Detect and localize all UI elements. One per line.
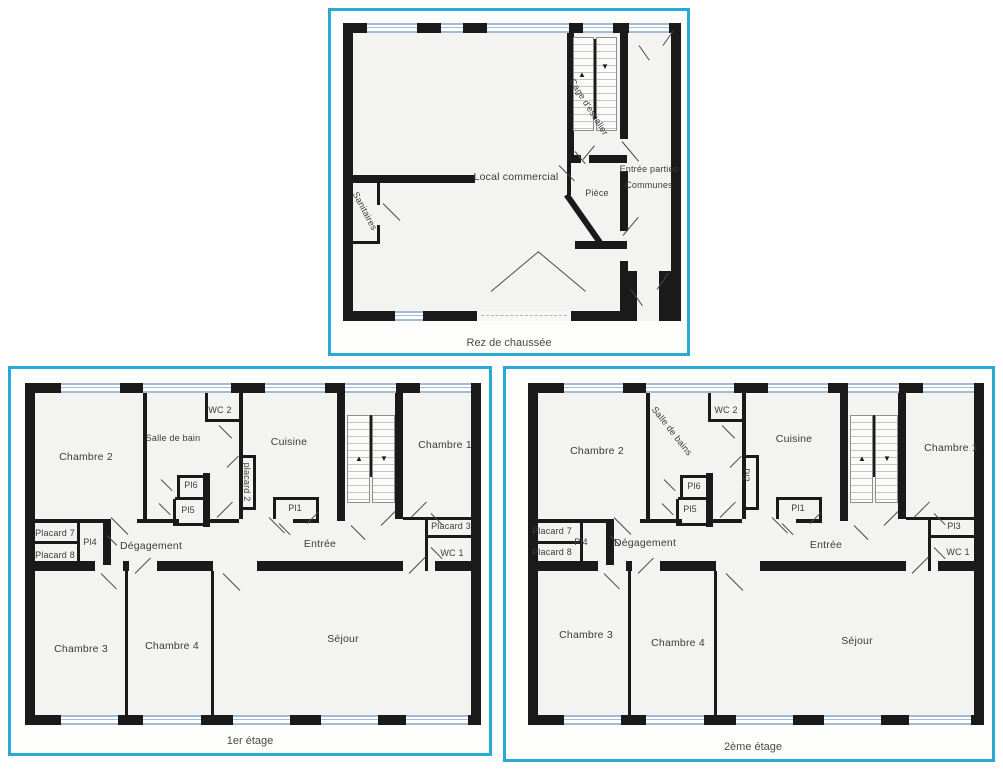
window-symbol	[143, 383, 231, 393]
wall	[714, 571, 717, 715]
wall	[974, 383, 984, 725]
window-symbol	[564, 715, 621, 725]
room-label-degagement: Dégagement	[614, 537, 676, 549]
room-label-chambre1: Chambre 1	[418, 439, 472, 451]
room-label-local-commercial: Local commercial	[474, 171, 559, 183]
wall	[589, 155, 627, 163]
plan-ground-inner: ▲▼Local commercialSanitairesPièceCage d'…	[331, 11, 687, 353]
room-label-wc1: WC 1	[440, 548, 463, 558]
plan-first-floor: ▲▼Chambre 2Salle de bainWC 2CuisineChamb…	[8, 366, 492, 756]
floor-area	[25, 383, 481, 725]
floor-area	[528, 383, 984, 725]
window-symbol	[923, 383, 974, 393]
room-label-pl5: Pl5	[181, 505, 195, 515]
room-label-cuisine: Cuisine	[271, 436, 307, 448]
plan-second-inner: ▲▼Chambre 2Salle de bainsWC 2CuisineCham…	[514, 369, 992, 759]
room-label-sejour: Séjour	[327, 633, 359, 645]
wall	[35, 541, 77, 544]
wall	[239, 507, 256, 510]
room-label-chambre1: Chambre 1	[924, 442, 978, 454]
wall	[938, 561, 974, 571]
wall	[253, 457, 256, 509]
room-label-pl6: Pl6	[184, 480, 198, 490]
wall	[710, 519, 742, 523]
window-symbol	[420, 383, 471, 393]
stair-direction-arrow-icon: ▲	[355, 455, 363, 463]
window-symbol	[768, 383, 828, 393]
floor-caption: 1er étage	[11, 735, 489, 747]
window-symbol	[583, 23, 613, 33]
room-label-entree: Entrée	[810, 539, 842, 551]
wall	[538, 561, 598, 571]
room-label-placard7: Placard 7	[35, 528, 75, 538]
wall	[143, 393, 147, 519]
wall	[25, 383, 35, 725]
wall	[640, 519, 682, 523]
window-symbol	[909, 715, 971, 725]
wall	[708, 419, 746, 422]
wall	[628, 571, 631, 715]
glazing-dashed-line	[481, 315, 567, 316]
wall	[575, 241, 627, 249]
wall	[928, 535, 974, 538]
window-symbol	[824, 715, 881, 725]
plan-second-floor: ▲▼Chambre 2Salle de bainsWC 2CuisineCham…	[503, 366, 995, 762]
window-symbol	[61, 383, 120, 393]
wall	[567, 163, 571, 195]
room-label-chambre4: Chambre 4	[651, 637, 705, 649]
wall	[205, 419, 243, 422]
window-symbol	[736, 715, 793, 725]
stair-direction-arrow-icon: ▼	[601, 63, 609, 71]
plan-first-inner: ▲▼Chambre 2Salle de bainWC 2CuisineChamb…	[11, 369, 489, 753]
wall	[435, 561, 471, 571]
wall	[620, 261, 628, 315]
stair-direction-arrow-icon: ▲	[858, 455, 866, 463]
room-label-placard2: placard 2	[242, 463, 252, 502]
stair-direction-arrow-icon: ▼	[380, 455, 388, 463]
wall	[620, 23, 628, 139]
room-label-placard3: Placard 3	[431, 521, 471, 531]
room-label-pl2: Pl2	[741, 468, 751, 482]
window-symbol	[629, 23, 669, 33]
wall	[756, 457, 759, 509]
room-label-pl1: Pl1	[288, 503, 302, 513]
room-label-entree: Entrée	[304, 538, 336, 550]
stair-direction-arrow-icon: ▲	[578, 71, 586, 79]
room-label-chambre2: Chambre 2	[570, 445, 624, 457]
wall	[273, 500, 276, 519]
window-symbol	[143, 715, 201, 725]
wall	[898, 393, 906, 519]
room-label-sejour: Séjour	[841, 635, 873, 647]
window-symbol	[441, 23, 463, 33]
wall	[742, 507, 759, 510]
window-symbol	[265, 383, 325, 393]
wall	[819, 500, 822, 519]
wall	[395, 393, 403, 519]
room-label-placard8: Placard 8	[532, 547, 572, 557]
wall	[538, 519, 610, 523]
window-symbol	[321, 715, 378, 725]
wall	[35, 519, 107, 523]
room-label-chambre4: Chambre 4	[145, 640, 199, 652]
wall	[103, 519, 111, 565]
wall	[273, 497, 319, 500]
wall	[316, 500, 319, 519]
wall	[157, 561, 213, 571]
plan-ground-floor: ▲▼Local commercialSanitairesPièceCage d'…	[328, 8, 690, 356]
stair-direction-arrow-icon: ▼	[883, 455, 891, 463]
room-label-wc2: WC 2	[208, 405, 231, 415]
room-label-pl1: Pl1	[791, 503, 805, 513]
room-label-pl4: Pl4	[83, 537, 97, 547]
room-label-chambre3: Chambre 3	[559, 629, 613, 641]
window-symbol	[646, 383, 734, 393]
room-label-communes: Communes	[625, 180, 673, 190]
window-symbol	[646, 715, 704, 725]
floor-caption: 2ème étage	[514, 741, 992, 753]
wall	[606, 519, 614, 565]
room-label-chambre3: Chambre 3	[54, 643, 108, 655]
room-label-pl6: Pl6	[687, 481, 701, 491]
wall	[343, 23, 353, 321]
window-symbol	[367, 23, 417, 33]
room-label-pl5: Pl5	[683, 504, 697, 514]
room-label-piece: Pièce	[585, 188, 609, 198]
wall	[211, 571, 214, 715]
window-symbol	[848, 383, 899, 393]
wall	[776, 497, 822, 500]
wall	[471, 383, 481, 725]
window-symbol	[345, 383, 396, 393]
wall	[646, 393, 650, 519]
window-symbol	[61, 715, 118, 725]
window-symbol	[487, 23, 569, 33]
room-label-wc2: WC 2	[714, 405, 737, 415]
window-symbol	[564, 383, 623, 393]
wall	[207, 519, 239, 523]
wall	[760, 561, 906, 571]
storefront-opening	[477, 311, 571, 321]
wall	[35, 561, 95, 571]
wall	[377, 183, 380, 205]
wall	[425, 535, 471, 538]
room-label-chambre2: Chambre 2	[59, 451, 113, 463]
wall	[175, 497, 203, 500]
wall	[137, 519, 179, 523]
wall	[77, 523, 80, 561]
wall	[125, 571, 128, 715]
wall	[840, 393, 848, 521]
wall	[353, 241, 380, 244]
room-label-salle-de-bain: Salle de bain	[146, 433, 201, 443]
room-label-cuisine: Cuisine	[776, 433, 812, 445]
room-label-entree-parties: Entrée parties	[620, 164, 679, 174]
wall	[257, 561, 403, 571]
window-symbol	[395, 311, 423, 321]
wall	[173, 523, 203, 526]
wall	[660, 561, 716, 571]
room-label-wc1: WC 1	[946, 547, 969, 557]
window-symbol	[406, 715, 468, 725]
wall	[928, 520, 931, 571]
room-label-pl4: Pl4	[574, 537, 588, 547]
window-symbol	[233, 715, 290, 725]
room-label-placard7: Placard 7	[532, 526, 572, 536]
wall	[179, 475, 203, 478]
room-label-placard8: Placard 8	[35, 550, 75, 560]
wall	[425, 520, 428, 571]
wall	[177, 475, 180, 497]
wall	[682, 475, 706, 478]
room-label-degagement: Dégagement	[120, 540, 182, 552]
room-label-pl3: Pl3	[947, 521, 961, 531]
wall	[676, 523, 706, 526]
wall	[626, 561, 632, 571]
wall	[776, 500, 779, 519]
wall	[123, 561, 129, 571]
wall	[678, 497, 706, 500]
wall	[680, 475, 683, 497]
wall	[708, 393, 711, 421]
floor-caption: Rez de chaussée	[331, 337, 687, 349]
wall	[353, 175, 475, 183]
wall	[337, 393, 345, 521]
floor-plans-canvas: ▲▼Local commercialSanitairesPièceCage d'…	[0, 0, 1003, 774]
